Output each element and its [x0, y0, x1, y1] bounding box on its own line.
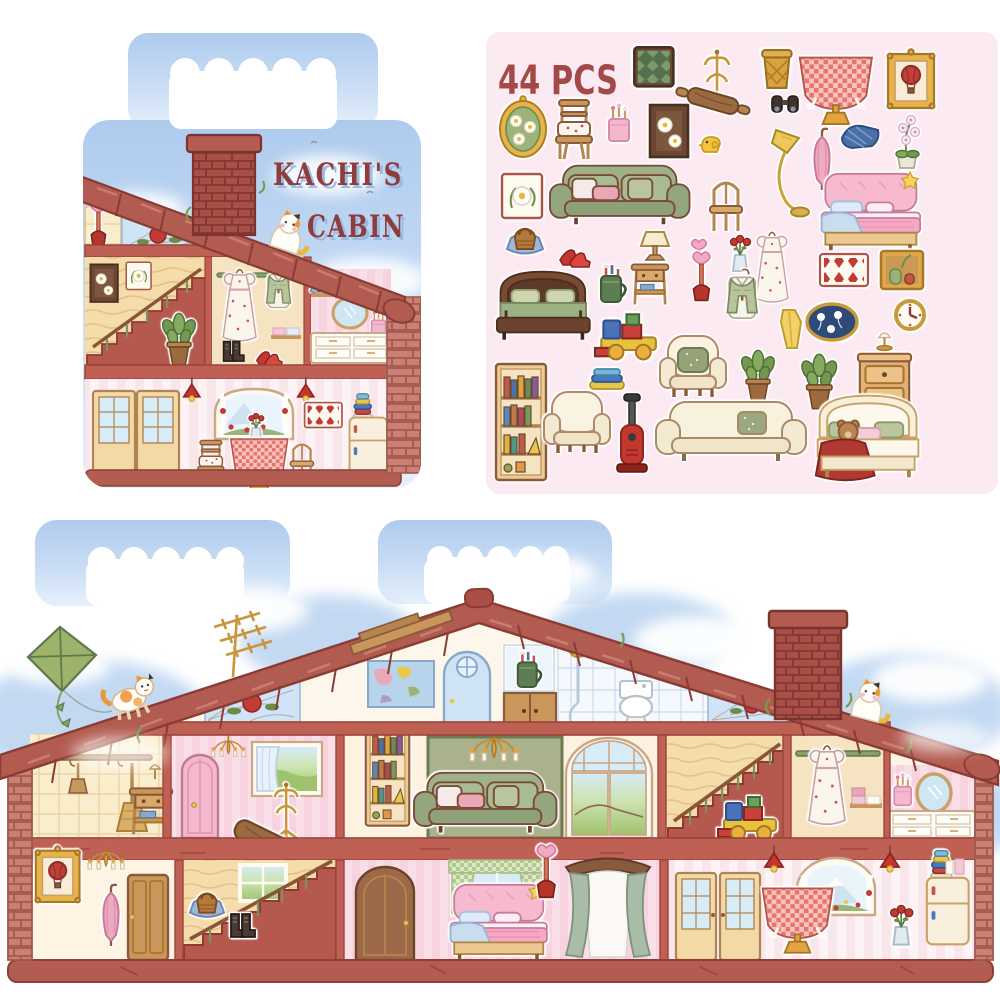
sticker-plaid-blanket-icon — [842, 126, 878, 148]
daisy-frame — [126, 262, 151, 289]
middle-floor — [85, 365, 401, 379]
french-doors — [93, 391, 179, 473]
carry-case: KACHI'S CABIN — [77, 33, 428, 492]
hand-brush — [69, 779, 87, 793]
sticker-daisy-frame-icon — [502, 174, 542, 218]
entry-door — [128, 875, 168, 960]
attic-blue-door — [444, 652, 490, 727]
sticker-green-sofa-icon — [550, 166, 690, 225]
sticker-teddy-bed-icon — [816, 396, 919, 481]
ground-bedroom — [344, 845, 660, 960]
closet-shelf — [271, 335, 301, 339]
sticker-sheet: 44 PCS — [486, 32, 998, 494]
mug-niche — [504, 645, 554, 691]
left-brick-wall — [8, 767, 32, 960]
open-house — [0, 520, 1000, 982]
canopy — [566, 859, 650, 958]
sticker-white-sofa-icon — [656, 402, 806, 461]
entry-balloon-frame — [35, 846, 79, 902]
entry-hall — [30, 845, 175, 960]
case-title-line1: KACHI'S — [273, 157, 403, 193]
piece-count-label: 44 PCS — [498, 58, 618, 104]
vanity-corner — [888, 765, 975, 838]
sticker-diamond-rug-icon — [820, 254, 868, 286]
case-title-line2: CABIN — [307, 209, 405, 245]
sticker-pink-bed-icon — [822, 172, 920, 250]
handle-hole — [169, 58, 337, 129]
vanity-brush-cup — [894, 773, 911, 805]
sticker-white-dress-icon — [756, 232, 788, 302]
illustration: 44 PCS — [0, 0, 1000, 1000]
bedroom-door — [356, 867, 414, 960]
attic-floor-band — [120, 722, 890, 735]
case-stair-room — [85, 257, 205, 365]
sticker-brush-cup-icon — [609, 103, 629, 141]
foundation — [85, 470, 401, 486]
sticker-bookshelf-icon — [496, 364, 546, 480]
right-brick-wall — [975, 770, 993, 960]
sticker-basket-icon — [762, 50, 791, 88]
case-diamond-rug — [305, 403, 342, 428]
sticker-wall-clock-icon — [896, 301, 924, 329]
living-sofa — [414, 773, 557, 833]
sticker-wooden-chair-icon — [710, 183, 742, 231]
wardrobe-dress — [809, 746, 845, 824]
living-room — [344, 725, 658, 838]
sticker-balloon-frame-icon — [888, 49, 935, 108]
daisy-painting — [90, 264, 117, 301]
wall-divider — [205, 257, 212, 365]
chimney — [766, 611, 851, 719]
ground-pink-bed — [451, 883, 547, 960]
sticker-towel-stack-icon — [590, 369, 624, 389]
sticker-vase-cabinet-icon — [881, 251, 923, 289]
sticker-green-bed-icon — [497, 272, 590, 340]
dining-fridge — [927, 878, 969, 945]
dining-kitchen — [668, 845, 975, 960]
sticker-armchair-green-pillow-icon — [660, 336, 726, 397]
sticker-daisy-painting-icon — [650, 105, 688, 157]
sticker-white-armchair-icon — [544, 392, 610, 453]
sticker-green-check-rug-icon — [634, 47, 673, 86]
foundation — [8, 960, 993, 982]
case-fridge — [350, 418, 387, 478]
living-bookshelf — [366, 725, 410, 826]
wardrobe-room — [790, 734, 886, 838]
pink-door — [182, 755, 218, 838]
mid-staircase-room — [665, 734, 785, 840]
sticker-oval-daisy-art-icon — [807, 304, 857, 340]
lower-staircase-room — [180, 860, 336, 960]
arch-window — [566, 738, 652, 838]
case-dress — [223, 270, 256, 341]
product-shot: 44 PCS — [0, 0, 1000, 1000]
case-chimney — [186, 135, 264, 235]
curtain — [257, 747, 279, 791]
